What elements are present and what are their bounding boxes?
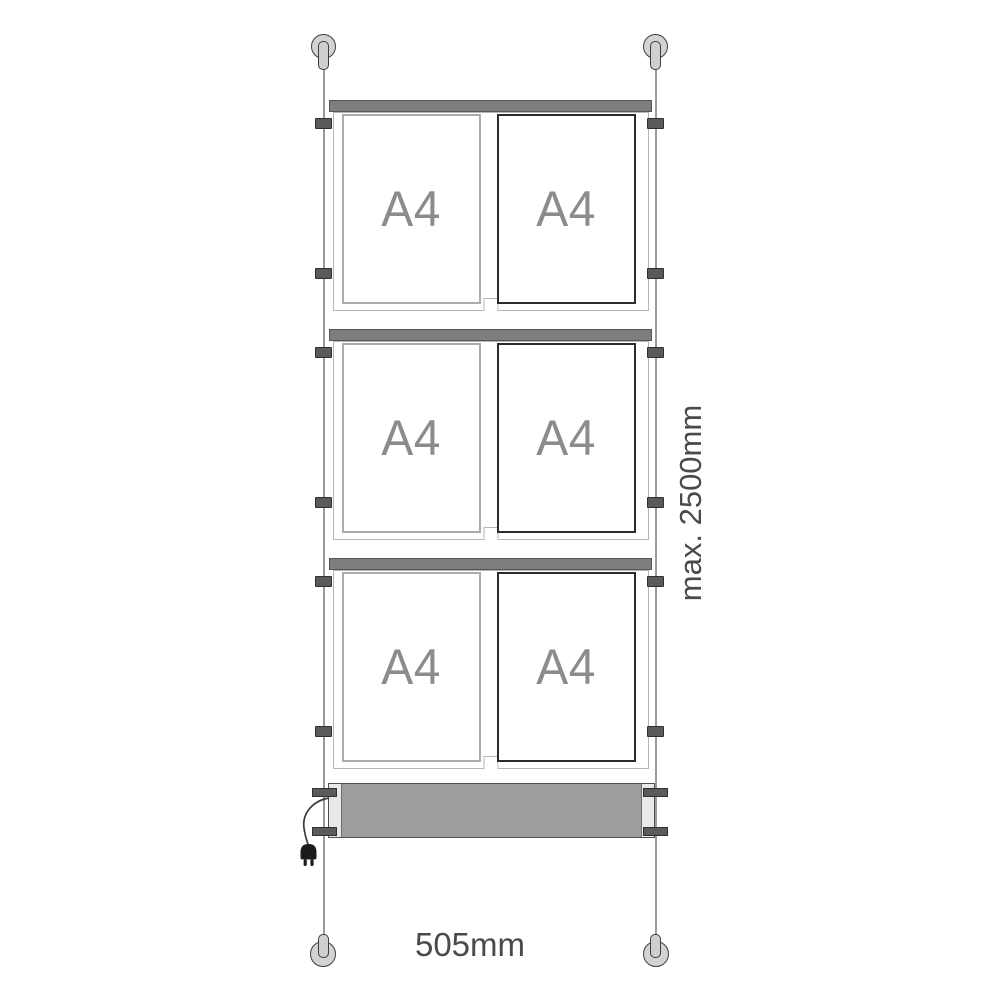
a4-size-label: A4 <box>382 413 442 463</box>
cable-clamp <box>315 497 332 508</box>
top-rail <box>329 329 652 341</box>
cable-clamp <box>643 788 668 797</box>
width-dimension-label: 505mm <box>370 926 570 964</box>
cable-clamp <box>315 268 332 279</box>
cable-clamp <box>312 788 337 797</box>
plug-prong-icon <box>310 860 313 867</box>
max-height-dimension-label: max. 2500mm <box>674 403 708 603</box>
top-rail <box>329 558 652 570</box>
a4-pocket-right: A4 <box>497 114 636 304</box>
cable-clamp <box>315 118 332 129</box>
product-diagram: A4 A4 A4 A4 A4 A <box>0 0 1000 1000</box>
a4-size-label: A4 <box>382 184 442 234</box>
power-plug-icon <box>301 844 317 860</box>
cable-clamp <box>315 347 332 358</box>
a4-pocket-right: A4 <box>497 572 636 762</box>
power-cord <box>304 798 329 844</box>
cable-clamp <box>643 827 668 836</box>
a4-size-label: A4 <box>537 642 597 692</box>
cable-clamp <box>312 827 337 836</box>
cable-clamp <box>647 347 664 358</box>
a4-size-label: A4 <box>537 184 597 234</box>
floor-fixing-stem-icon <box>318 934 329 958</box>
top-rail <box>329 100 652 112</box>
cable-clamp <box>647 576 664 587</box>
cable-clamp <box>315 726 332 737</box>
cable-clamp <box>315 576 332 587</box>
cable-clamp <box>647 268 664 279</box>
floor-fixing-stem-icon <box>650 934 661 958</box>
a4-size-label: A4 <box>537 413 597 463</box>
cable-clamp <box>647 118 664 129</box>
cable-clamp <box>647 497 664 508</box>
a4-pocket-left: A4 <box>342 343 481 533</box>
light-box <box>328 783 655 838</box>
cable-clamp <box>647 726 664 737</box>
a4-pocket-left: A4 <box>342 572 481 762</box>
a4-pocket-left: A4 <box>342 114 481 304</box>
ceiling-fixing-stem-icon <box>650 41 661 70</box>
a4-size-label: A4 <box>382 642 442 692</box>
a4-pocket-right: A4 <box>497 343 636 533</box>
ceiling-fixing-stem-icon <box>318 41 329 70</box>
plug-prong-icon <box>304 860 307 867</box>
